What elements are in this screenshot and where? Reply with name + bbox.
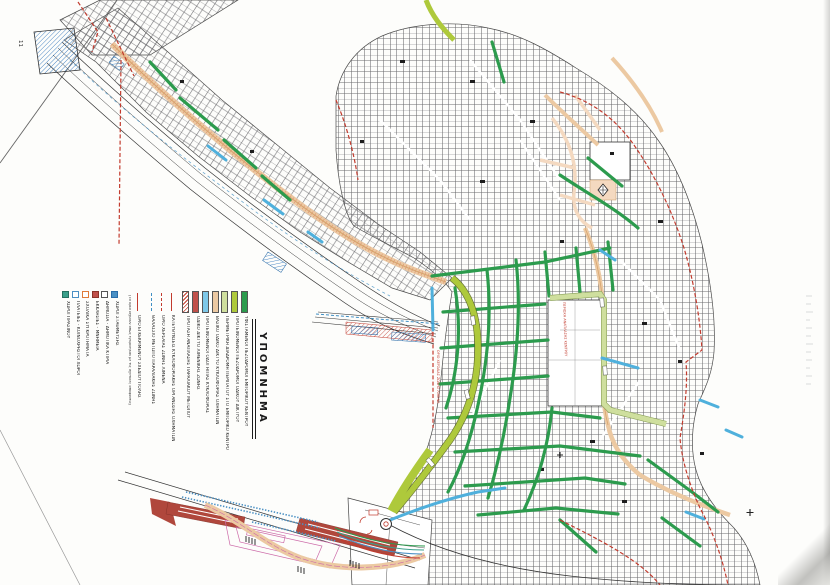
page-curl-shadow xyxy=(778,521,830,585)
city-map-svg: 11 xyxy=(0,0,830,585)
scanned-map-page: 11 xyxy=(0,0,830,585)
sheet-neatlines xyxy=(0,0,117,585)
pier-hatch xyxy=(352,326,378,335)
margin-note-faint xyxy=(806,296,813,384)
scan-edge-shadow xyxy=(823,0,830,585)
port-zone-boundary-label: ΟΡΙΟ ΧΕΡΣΑΙΑΣ ΖΩΝΗΣ ΛΙΜΕΝΑ xyxy=(436,350,440,404)
sheet-number: 11 xyxy=(17,40,23,47)
